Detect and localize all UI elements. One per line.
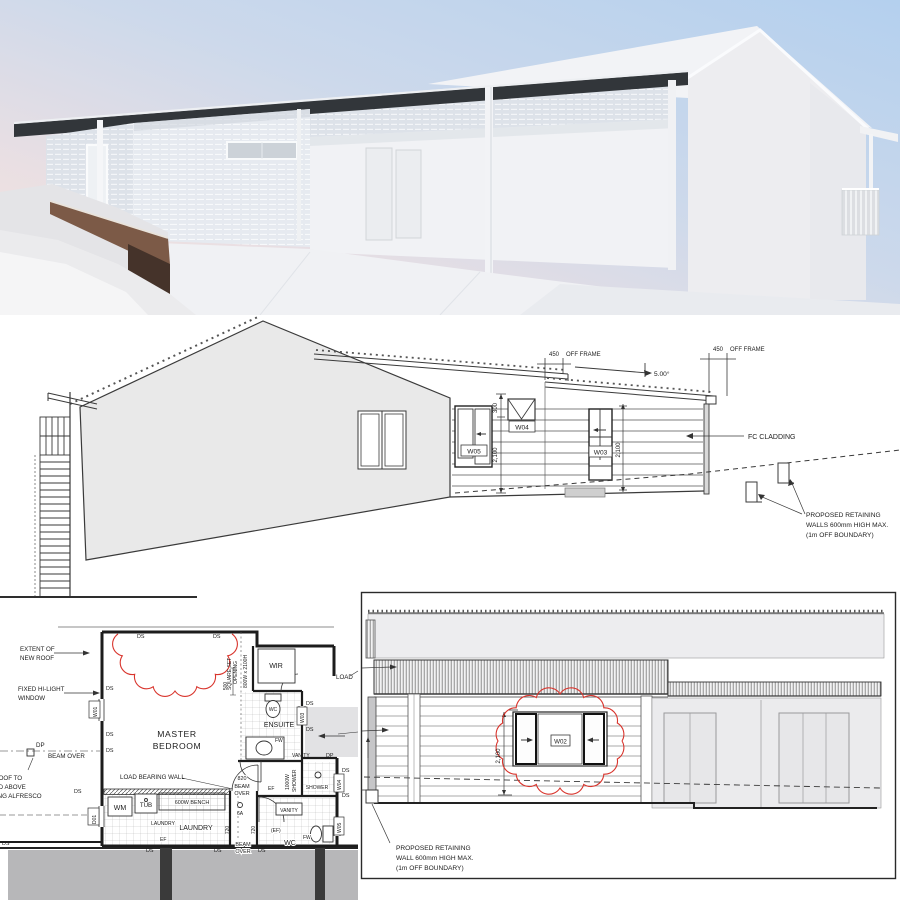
drawing-sheet: 450 OFF FRAME 450 OFF FRAME 5.00° 300 2,… bbox=[0, 0, 900, 900]
ef-label: EF bbox=[268, 786, 274, 792]
dp-label: DP bbox=[36, 742, 45, 749]
ds-marker: DS bbox=[2, 841, 10, 847]
fc-cladding-leader bbox=[686, 433, 744, 439]
window-tag-w04: W04 bbox=[337, 780, 343, 791]
dim-300-label: 300 bbox=[493, 402, 499, 413]
rear-elevation-panel: W02 2,100 PROPOSED RETAINING WALL 600mm … bbox=[360, 591, 897, 880]
ds-marker: DS bbox=[213, 634, 221, 640]
new-roof-fascia bbox=[374, 660, 668, 694]
retaining-note-line2: WALLS 600mm HIGH MAX. bbox=[806, 522, 888, 529]
switch-6a-label: 6A bbox=[237, 811, 244, 817]
window-tag-w03: W03 bbox=[300, 713, 306, 724]
hilight-note-line1: FIXED HI-LIGHT bbox=[18, 686, 65, 693]
retaining-note-line3: (1m OFF BOUNDARY) bbox=[396, 865, 464, 872]
window-tag-w02: W02 bbox=[554, 739, 567, 746]
downpipe bbox=[297, 109, 301, 241]
ds-marker: DS bbox=[106, 748, 114, 754]
room-master-line2: BEDROOM bbox=[153, 741, 202, 751]
over-label: OVER bbox=[235, 849, 250, 855]
over-label: OVER bbox=[234, 791, 249, 797]
dim-2100-label: 2,100 bbox=[616, 442, 622, 458]
room-master-line1: MASTER bbox=[157, 729, 196, 739]
extent-note-line1: EXTENT OF bbox=[20, 646, 55, 653]
extent-note-line2: NEW ROOF bbox=[20, 655, 54, 662]
beam-label: BEAM bbox=[234, 784, 250, 790]
ds-marker: DS bbox=[342, 768, 350, 774]
beam-over-label: BEAM OVER bbox=[48, 753, 85, 760]
existing-wall-section bbox=[652, 698, 881, 808]
square-set-line2: OPENING bbox=[233, 661, 239, 684]
alfresco-note-line2: EXTEND ABOVE bbox=[0, 784, 26, 791]
tub-label: TUB bbox=[140, 802, 152, 809]
dp-box bbox=[27, 749, 34, 756]
square-set-size: 800W x 2100H bbox=[243, 655, 249, 688]
room-laundry: LAUNDRY bbox=[179, 825, 213, 832]
shower-width-label: 1000W bbox=[285, 774, 291, 790]
ef-paren-label: (EF) bbox=[271, 828, 281, 834]
ds-marker: DS bbox=[146, 848, 154, 854]
dim-820: 820 bbox=[238, 776, 247, 782]
alfresco-note-line3: EXISTING ALFRESCO bbox=[0, 793, 42, 800]
ds-marker: DS bbox=[258, 848, 266, 854]
shower-vert-label: SHOWER bbox=[292, 769, 298, 792]
alfresco-post bbox=[668, 80, 676, 270]
dim-450-label: 450 bbox=[549, 352, 560, 358]
fw-label: FW bbox=[275, 738, 283, 744]
dim-720: 720 bbox=[225, 826, 231, 835]
balustrade bbox=[842, 190, 879, 235]
ds-marker: DS bbox=[74, 789, 82, 795]
fw-label: FW bbox=[303, 835, 311, 841]
wm-label: WM bbox=[114, 805, 127, 812]
window-tag-w03: W03 bbox=[594, 450, 608, 457]
window-w05 bbox=[455, 406, 492, 467]
alfresco-door bbox=[366, 148, 392, 240]
dim-2100-label: 2,100 bbox=[496, 748, 502, 764]
wc-toilet-bowl bbox=[311, 826, 322, 842]
vanity-label: VANITY bbox=[280, 808, 298, 814]
alfresco-door bbox=[396, 150, 421, 238]
roof-slope-label: 5.00° bbox=[654, 370, 670, 378]
dp-label: DP bbox=[326, 753, 334, 759]
front-wall bbox=[134, 109, 310, 247]
ef-label: EF bbox=[160, 837, 166, 843]
fc-cladding-label: FC CLADDING bbox=[748, 434, 795, 441]
room-ensuite: ENSUITE bbox=[264, 722, 295, 729]
side-elevation-view: 450 OFF FRAME 450 OFF FRAME 5.00° 300 2,… bbox=[0, 315, 900, 600]
door-tag-d01: D01 bbox=[92, 815, 98, 824]
load-bearing-wall-label: LOAD BEARING WALL bbox=[120, 774, 185, 781]
ds-marker: DS bbox=[342, 793, 350, 799]
revision-cloud-bedroom bbox=[113, 634, 238, 696]
room-wir: WIR bbox=[269, 663, 283, 670]
retaining-note-line3: (1m OFF BOUNDARY) bbox=[806, 532, 874, 539]
ds-marker: DS bbox=[106, 732, 114, 738]
vanity-label: VANITY bbox=[292, 753, 310, 759]
window-w03 bbox=[589, 409, 612, 480]
ds-marker: DS bbox=[106, 686, 114, 692]
dim-500: 500 bbox=[223, 682, 229, 691]
dim-2100-label: 2,100 bbox=[493, 447, 499, 463]
deck-gray bbox=[0, 848, 358, 900]
hilight-note-line2: WINDOW bbox=[18, 695, 45, 702]
retaining-note-line1: PROPOSED RETAINING bbox=[396, 845, 471, 852]
window-tag-w01: W01 bbox=[93, 707, 99, 718]
dim-450-label: 450 bbox=[713, 347, 724, 353]
off-frame-label: OFF FRAME bbox=[730, 347, 765, 353]
floor-plan-view: EXTENT OF NEW ROOF FIXED HI-LIGHT WINDOW… bbox=[0, 600, 360, 900]
boundary-dashed-line bbox=[455, 450, 900, 493]
ds-marker: DS bbox=[214, 848, 222, 854]
alfresco-post bbox=[485, 87, 493, 279]
roof-assembly bbox=[366, 611, 884, 699]
gutter bbox=[706, 396, 716, 404]
existing-roof-fascia bbox=[668, 682, 881, 696]
room-wc: WC bbox=[284, 840, 296, 847]
wc-tiny-label: WC bbox=[269, 707, 278, 713]
window-tag-w05: W05 bbox=[337, 823, 343, 834]
load-cut-label: LOAD bbox=[336, 674, 353, 681]
off-frame-label: OFF FRAME bbox=[566, 352, 601, 358]
window-tag-w05: W05 bbox=[467, 449, 481, 456]
ds-marker: DS bbox=[306, 701, 314, 707]
ds-marker: DS bbox=[137, 634, 145, 640]
window-tag-w04: W04 bbox=[515, 425, 529, 432]
toilet-cistern bbox=[265, 694, 281, 701]
ds-marker: DS bbox=[306, 727, 314, 733]
laundry-small-label: LAUNDRY bbox=[151, 821, 175, 827]
beam-label: BEAM bbox=[235, 842, 251, 848]
3d-render-view bbox=[0, 0, 900, 315]
alfresco-note-line1: NEW ROOF TO bbox=[0, 775, 22, 782]
retaining-note-line1: PROPOSED RETAINING bbox=[806, 512, 881, 519]
existing-door bbox=[779, 713, 849, 803]
dim-720: 720 bbox=[251, 826, 257, 835]
existing-gable bbox=[48, 316, 450, 560]
retaining-note-line2: WALL 600mm HIGH MAX. bbox=[396, 855, 474, 862]
shower-label: SHOWER bbox=[306, 785, 329, 791]
retaining-wall-steps bbox=[746, 463, 805, 514]
bench-label: 600W BENCH bbox=[175, 800, 210, 806]
